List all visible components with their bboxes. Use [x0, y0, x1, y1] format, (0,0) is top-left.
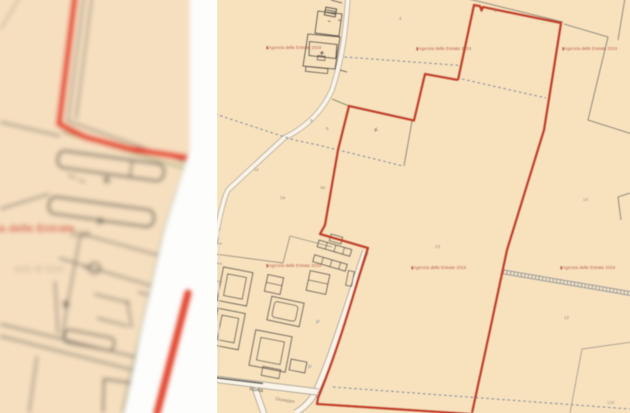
svg-text:13: 13 [435, 244, 441, 249]
svg-text:P: P [316, 320, 320, 326]
svg-text:P: P [308, 365, 312, 371]
svg-text:▮Agenzia delle Entrate 2019: ▮Agenzia delle Entrate 2019 [560, 265, 616, 270]
svg-text:▮Agenzia delle Entrate 2019: ▮Agenzia delle Entrate 2019 [266, 263, 322, 268]
svg-text:▮Agenzia delle Entrate 2019: ▮Agenzia delle Entrate 2019 [416, 46, 472, 51]
svg-text:1a: 1a [280, 195, 286, 200]
svg-text:▮Agenzia delle Entrate 2019: ▮Agenzia delle Entrate 2019 [266, 45, 322, 50]
svg-text:120: 120 [607, 400, 615, 405]
svg-text:scio di Geo: scio di Geo [14, 264, 64, 275]
svg-text:nzia delle Entrate: nzia delle Entrate [0, 223, 74, 235]
svg-text:18: 18 [254, 167, 259, 172]
svg-text:▮Agenzia delle Entrate 2019: ▮Agenzia delle Entrate 2019 [562, 46, 618, 51]
svg-text:▮Agenzia delle Entrate 2019: ▮Agenzia delle Entrate 2019 [411, 265, 467, 270]
svg-text:12: 12 [564, 315, 570, 320]
svg-text:14: 14 [583, 197, 589, 202]
svg-text:4a: 4a [320, 185, 326, 190]
